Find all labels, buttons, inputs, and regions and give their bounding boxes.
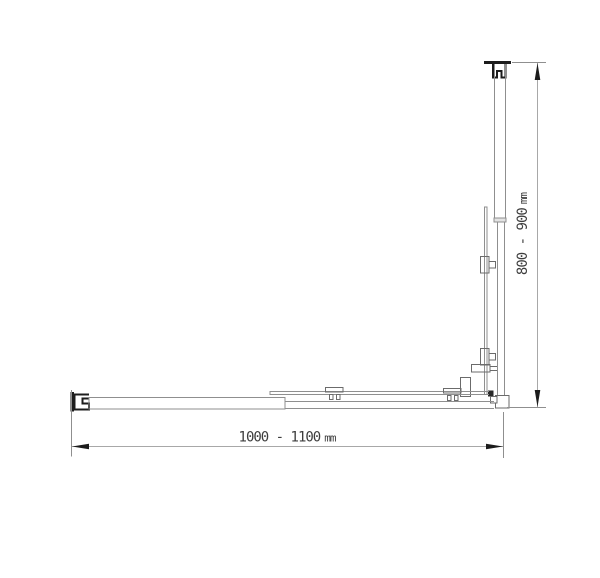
width-value: 1000 - 1100: [239, 430, 321, 446]
width-dimension-label: 1000 - 1100mm: [239, 430, 337, 446]
glass-clamp-lower: [481, 349, 496, 366]
top-wall-bracket: [484, 61, 511, 78]
height-arrow-bottom: [535, 390, 541, 407]
left-wall-bracket: [71, 392, 90, 412]
roller-clip-left: [326, 388, 344, 400]
bottom-rail-thin: [285, 402, 494, 409]
corner-bracket-vertical: [461, 378, 471, 397]
profile-end-cap: [494, 218, 506, 222]
width-dimension: 1000 - 1100mm: [72, 390, 504, 458]
bottom-rail-wide: [89, 398, 285, 410]
width-arrow-right: [486, 444, 503, 450]
height-arrow-top: [535, 63, 541, 80]
width-unit: mm: [324, 432, 337, 445]
width-arrow-left: [72, 444, 89, 450]
drawing-canvas: 1000 - 1100mm 800 - 900mm: [0, 0, 600, 578]
technical-drawing: 1000 - 1100mm 800 - 900mm: [0, 0, 600, 578]
right-wall-profile: [494, 64, 506, 222]
right-glass-panel: [484, 207, 488, 395]
left-bracket-body: [75, 395, 90, 410]
right-side-assembly: [461, 61, 512, 408]
glass-clamp-upper: [481, 257, 496, 274]
right-inner-profile: [498, 222, 505, 396]
bottom-side-assembly: [71, 388, 495, 412]
height-unit: mm: [517, 192, 530, 205]
top-bracket-flange: [484, 61, 511, 64]
height-value: 800 - 900: [515, 208, 531, 275]
height-dimension-label: 800 - 900mm: [515, 192, 531, 275]
height-dimension: 800 - 900mm: [507, 63, 546, 408]
